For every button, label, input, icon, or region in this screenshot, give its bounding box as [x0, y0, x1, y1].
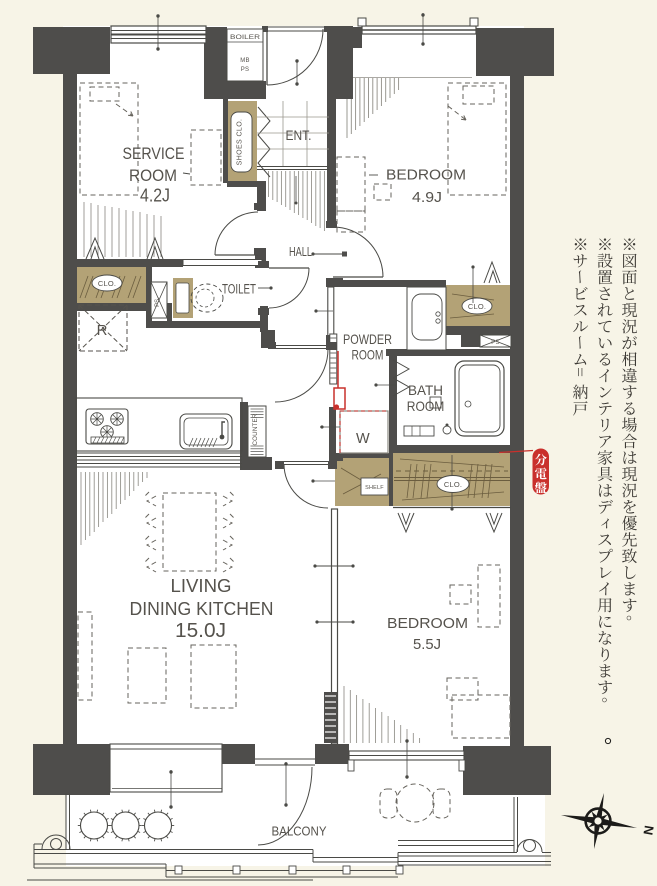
svg-text:CLO.: CLO. [468, 302, 486, 311]
svg-text:15.0J: 15.0J [175, 620, 226, 642]
svg-text:PS: PS [241, 67, 249, 73]
svg-text:W: W [356, 431, 370, 447]
svg-text:COUNTER: COUNTER [252, 413, 259, 445]
svg-text:PS: PS [491, 340, 499, 346]
svg-text:BATH: BATH [408, 382, 443, 398]
svg-text:LIVING: LIVING [171, 575, 232, 596]
svg-text:ENT.: ENT. [286, 127, 312, 143]
svg-text:TOILET: TOILET [222, 282, 256, 297]
svg-text:HALL: HALL [289, 244, 312, 259]
svg-text:BEDROOM: BEDROOM [386, 168, 466, 184]
svg-text:CLO.: CLO. [98, 279, 116, 288]
svg-text:SERVICE: SERVICE [123, 145, 185, 163]
svg-text:BOILER: BOILER [230, 34, 260, 41]
svg-text:ROOM: ROOM [129, 167, 177, 185]
svg-text:R: R [97, 322, 108, 339]
svg-text:ROOM: ROOM [407, 398, 445, 414]
svg-text:CLO.: CLO. [444, 480, 462, 489]
svg-text:MB: MB [240, 58, 249, 64]
svg-text:DINING KITCHEN: DINING KITCHEN [130, 598, 274, 619]
svg-text:4.9J: 4.9J [412, 189, 442, 206]
svg-text:BALCONY: BALCONY [272, 824, 327, 839]
svg-text:POWDER: POWDER [343, 331, 392, 347]
svg-text:BEDROOM: BEDROOM [387, 616, 468, 632]
svg-text:5.5J: 5.5J [413, 636, 441, 653]
svg-text:PS.: PS. [155, 297, 161, 307]
svg-text:SHOES CLO.: SHOES CLO. [237, 119, 244, 166]
svg-text:SHELF: SHELF [365, 485, 384, 491]
svg-text:ROOM: ROOM [352, 347, 384, 363]
svg-text:4.2J: 4.2J [140, 186, 170, 206]
